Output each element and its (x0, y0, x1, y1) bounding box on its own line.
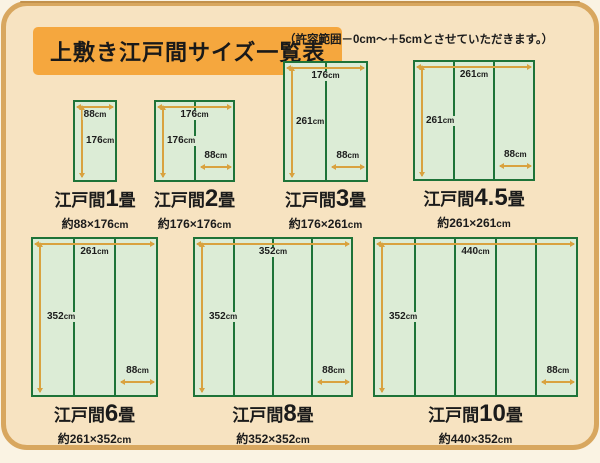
mat-caption: 江戸間2畳 約176×176cm (154, 185, 235, 232)
tatami-rect: 88cm 176cm (73, 100, 117, 182)
mat-name: 江戸間4.5畳 (423, 184, 524, 213)
diagram-edoma-3: 176cm 261cm 88cm 江戸間3畳 約176×261cm (283, 61, 368, 232)
bottom-width-label: 88cm (332, 151, 365, 161)
height-label: 176cm (85, 136, 115, 146)
bottom-width-arrow (121, 381, 154, 383)
tatami-rect: 176cm 176cm 88cm (154, 100, 235, 182)
tatami-rect: 261cm 261cm 88cm (413, 60, 535, 181)
bottom-width-arrow (500, 165, 531, 167)
mat-name: 江戸間2畳 (154, 185, 235, 214)
mat-caption: 江戸間3畳 約176×261cm (285, 185, 366, 232)
diagram-edoma-1: 88cm 176cm 江戸間1畳 約88×176cm (73, 100, 117, 232)
tatami-divider (535, 239, 537, 395)
tatami-divider (454, 239, 456, 395)
mat-caption: 江戸間8畳 約352×352cm (232, 400, 313, 447)
mat-size: 約261×352cm (54, 430, 135, 447)
tatami-rect: 176cm 261cm 88cm (283, 61, 368, 182)
bottom-width-arrow (542, 381, 574, 383)
mat-size: 約176×176cm (154, 215, 235, 232)
bottom-width-arrow (318, 381, 349, 383)
height-label: 261cm (425, 116, 455, 126)
mat-size: 約261×261cm (423, 214, 524, 231)
tatami-divider (493, 62, 495, 179)
width-arrow (377, 243, 574, 245)
diagram-edoma-10: 440cm 352cm 88cm 江戸間10畳 約440×352cm (373, 237, 578, 447)
bottom-width-arrow (332, 166, 365, 168)
height-label: 261cm (295, 117, 325, 127)
tatami-rect: 352cm 352cm 88cm (193, 237, 353, 397)
height-arrow (162, 106, 164, 177)
width-arrow (35, 243, 154, 245)
bottom-width-label: 88cm (318, 366, 349, 376)
bottom-width-label: 88cm (121, 366, 154, 376)
width-arrow (417, 66, 531, 68)
mat-caption: 江戸間10畳 約440×352cm (428, 400, 523, 447)
height-arrow (381, 243, 383, 392)
tatami-divider (311, 239, 313, 395)
height-arrow (291, 67, 293, 177)
mat-name: 江戸間3畳 (285, 185, 366, 214)
diagram-edoma-4-5: 261cm 261cm 88cm 江戸間4.5畳 約261×261cm (413, 60, 535, 231)
tatami-divider (495, 239, 497, 395)
mat-size: 約176×261cm (285, 215, 366, 232)
height-label: 352cm (388, 312, 418, 322)
tolerance-note: （許容範囲－0cm～＋5cmとさせていただきます。） (284, 31, 553, 47)
mat-name: 江戸間6畳 (54, 400, 135, 429)
width-label: 176cm (179, 110, 209, 120)
diagram-edoma-2: 176cm 176cm 88cm 江戸間2畳 約176×176cm (154, 100, 235, 232)
diagram-edoma-8: 352cm 352cm 88cm 江戸間8畳 約352×352cm (193, 237, 353, 447)
mat-size: 約440×352cm (428, 430, 523, 447)
width-arrow (158, 106, 231, 108)
height-label: 352cm (208, 312, 238, 322)
mat-size: 約352×352cm (232, 430, 313, 447)
height-arrow (39, 243, 41, 392)
size-chart-page: 上敷き江戸間サイズ一覧表 （許容範囲－0cm～＋5cmとさせていただきます。） … (0, 0, 600, 463)
width-arrow (287, 67, 364, 69)
mat-name: 江戸間1畳 (54, 185, 135, 214)
width-label: 352cm (258, 247, 288, 257)
width-label: 88cm (83, 110, 108, 120)
height-label: 352cm (46, 312, 76, 322)
width-label: 440cm (460, 247, 490, 257)
bottom-width-label: 88cm (201, 151, 232, 161)
tatami-rect: 261cm 352cm 88cm (31, 237, 158, 397)
mat-size: 約88×176cm (54, 215, 135, 232)
mat-caption: 江戸間4.5畳 約261×261cm (423, 184, 524, 231)
width-arrow (197, 243, 349, 245)
mat-name: 江戸間8畳 (232, 400, 313, 429)
diagram-edoma-6: 261cm 352cm 88cm 江戸間6畳 約261×352cm (31, 237, 158, 447)
bottom-width-arrow (201, 166, 232, 168)
tatami-divider (272, 239, 274, 395)
bottom-width-label: 88cm (500, 150, 531, 160)
tatami-divider (114, 239, 116, 395)
mat-name: 江戸間10畳 (428, 400, 523, 429)
height-label: 176cm (166, 136, 196, 146)
width-label: 261cm (79, 247, 109, 257)
bottom-width-label: 88cm (542, 366, 574, 376)
width-label: 261cm (459, 70, 489, 80)
width-label: 176cm (310, 71, 340, 81)
tatami-rect: 440cm 352cm 88cm (373, 237, 578, 397)
height-arrow (201, 243, 203, 392)
mat-caption: 江戸間6畳 約261×352cm (54, 400, 135, 447)
height-arrow (421, 66, 423, 176)
mat-caption: 江戸間1畳 約88×176cm (54, 185, 135, 232)
